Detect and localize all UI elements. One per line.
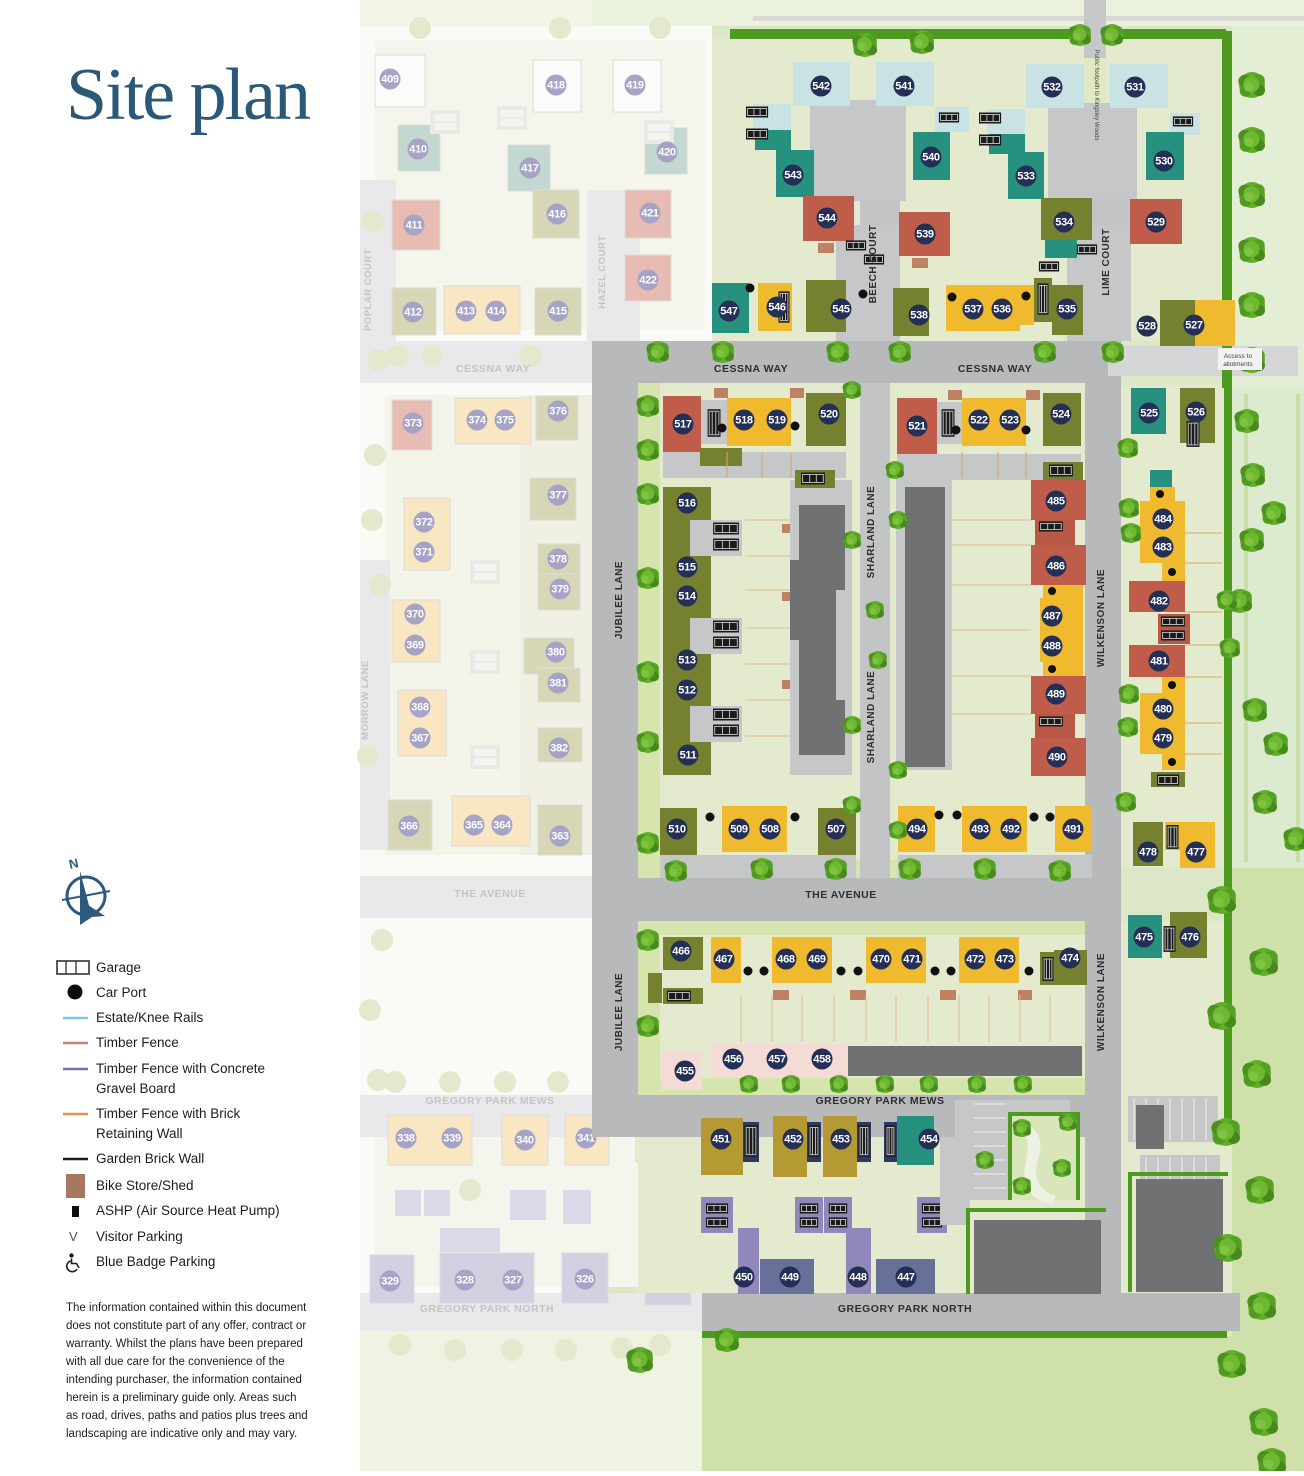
svg-text:521: 521 [908, 421, 926, 433]
svg-text:468: 468 [777, 954, 795, 966]
svg-text:487: 487 [1043, 611, 1061, 623]
svg-text:472: 472 [966, 954, 984, 966]
svg-text:513: 513 [678, 655, 696, 667]
svg-text:447: 447 [897, 1272, 915, 1284]
svg-text:490: 490 [1048, 752, 1066, 764]
svg-text:Gravel Board: Gravel Board [96, 1081, 176, 1096]
svg-text:369: 369 [406, 640, 424, 652]
svg-text:MORROW LANE: MORROW LANE [360, 660, 371, 739]
svg-text:CESSNA WAY: CESSNA WAY [456, 363, 530, 375]
svg-text:517: 517 [674, 419, 692, 431]
svg-text:363: 363 [551, 831, 569, 843]
svg-text:456: 456 [724, 1054, 742, 1066]
svg-text:367: 367 [411, 733, 429, 745]
svg-text:GREGORY PARK NORTH: GREGORY PARK NORTH [838, 1303, 972, 1315]
svg-text:532: 532 [1043, 82, 1061, 94]
svg-text:524: 524 [1052, 409, 1071, 421]
svg-text:landscaping are indicative onl: landscaping are indicative only and may … [66, 1428, 297, 1440]
svg-text:470: 470 [872, 954, 890, 966]
svg-text:GREGORY PARK MEWS: GREGORY PARK MEWS [425, 1095, 554, 1107]
svg-text:SHARLAND LANE: SHARLAND LANE [866, 671, 877, 764]
svg-text:JUBILEE LANE: JUBILEE LANE [614, 973, 625, 1051]
svg-text:413: 413 [457, 306, 475, 318]
svg-text:514: 514 [678, 591, 697, 603]
svg-text:WILKENSON LANE: WILKENSON LANE [1096, 569, 1107, 667]
svg-text:526: 526 [1187, 407, 1205, 419]
svg-text:527: 527 [1185, 320, 1203, 332]
svg-text:520: 520 [820, 409, 838, 421]
svg-text:545: 545 [832, 304, 850, 316]
svg-text:LIME COURT: LIME COURT [1101, 228, 1112, 295]
svg-text:483: 483 [1154, 542, 1172, 554]
svg-text:529: 529 [1147, 217, 1165, 229]
svg-text:516: 516 [678, 498, 696, 510]
svg-text:Garden Brick Wall: Garden Brick Wall [96, 1151, 204, 1166]
svg-text:522: 522 [970, 415, 988, 427]
svg-text:Retaining Wall: Retaining Wall [96, 1126, 183, 1141]
svg-text:541: 541 [895, 81, 913, 93]
svg-text:419: 419 [626, 80, 644, 92]
svg-text:480: 480 [1154, 704, 1172, 716]
svg-text:452: 452 [784, 1134, 802, 1146]
svg-text:377: 377 [549, 490, 567, 502]
svg-text:535: 535 [1058, 304, 1076, 316]
svg-text:530: 530 [1155, 156, 1173, 168]
svg-text:533: 533 [1017, 171, 1035, 183]
svg-text:486: 486 [1047, 561, 1065, 573]
svg-text:does not constitute part of an: does not constitute part of any offer, c… [66, 1320, 306, 1332]
svg-text:Site plan: Site plan [66, 54, 310, 136]
svg-text:421: 421 [641, 208, 659, 220]
svg-text:364: 364 [493, 820, 512, 832]
svg-text:536: 536 [993, 304, 1011, 316]
svg-text:542: 542 [812, 81, 830, 93]
svg-text:457: 457 [768, 1054, 786, 1066]
svg-text:GREGORY PARK NORTH: GREGORY PARK NORTH [420, 1303, 554, 1315]
svg-text:474: 474 [1061, 953, 1080, 965]
svg-text:381: 381 [549, 678, 567, 690]
svg-text:540: 540 [922, 152, 940, 164]
svg-text:528: 528 [1138, 321, 1156, 333]
svg-text:481: 481 [1150, 656, 1168, 668]
svg-text:512: 512 [678, 685, 696, 697]
svg-text:376: 376 [549, 406, 567, 418]
svg-text:409: 409 [381, 74, 399, 86]
svg-text:546: 546 [768, 302, 786, 314]
svg-text:WILKENSON LANE: WILKENSON LANE [1096, 953, 1107, 1051]
svg-text:477: 477 [1187, 847, 1205, 859]
svg-text:380: 380 [547, 647, 565, 659]
svg-text:CESSNA WAY: CESSNA WAY [714, 363, 788, 375]
svg-text:with all due care for the conv: with all due care for the convenience of… [65, 1356, 285, 1368]
svg-text:338: 338 [397, 1133, 415, 1145]
svg-text:534: 534 [1055, 217, 1074, 229]
svg-text:482: 482 [1150, 596, 1168, 608]
svg-text:382: 382 [550, 743, 568, 755]
svg-text:327: 327 [504, 1275, 522, 1287]
svg-text:Timber Fence: Timber Fence [96, 1035, 179, 1050]
svg-text:340: 340 [516, 1135, 534, 1147]
svg-text:458: 458 [813, 1054, 831, 1066]
svg-text:Timber Fence with Concrete: Timber Fence with Concrete [96, 1061, 265, 1076]
svg-text:491: 491 [1064, 824, 1082, 836]
svg-text:510: 510 [668, 824, 686, 836]
svg-text:467: 467 [715, 954, 733, 966]
svg-text:484: 484 [1154, 514, 1173, 526]
svg-text:374: 374 [468, 415, 487, 427]
svg-text:365: 365 [465, 820, 483, 832]
svg-text:368: 368 [411, 702, 429, 714]
svg-text:Access to: Access to [1224, 353, 1253, 360]
svg-text:CESSNA WAY: CESSNA WAY [958, 363, 1032, 375]
svg-text:471: 471 [903, 954, 921, 966]
svg-text:531: 531 [1126, 82, 1144, 94]
svg-text:416: 416 [548, 209, 566, 221]
svg-text:intending purchaser, the infor: intending purchaser, the information con… [66, 1374, 302, 1386]
svg-text:493: 493 [971, 824, 989, 836]
svg-text:478: 478 [1139, 847, 1157, 859]
svg-text:511: 511 [680, 750, 697, 762]
svg-text:Timber Fence with Brick: Timber Fence with Brick [96, 1106, 241, 1121]
svg-text:warranty. Whilst the plans hav: warranty. Whilst the plans have been pre… [65, 1338, 303, 1350]
svg-text:525: 525 [1140, 408, 1158, 420]
svg-text:417: 417 [521, 163, 539, 175]
svg-text:492: 492 [1002, 824, 1020, 836]
svg-text:V: V [69, 1229, 78, 1244]
svg-text:410: 410 [409, 144, 427, 156]
svg-text:507: 507 [827, 824, 845, 836]
svg-text:HAZEL COURT: HAZEL COURT [597, 235, 608, 308]
svg-text:378: 378 [549, 554, 567, 566]
svg-text:SHARLAND LANE: SHARLAND LANE [866, 486, 877, 579]
svg-text:POPLAR COURT: POPLAR COURT [363, 249, 374, 331]
svg-text:373: 373 [404, 418, 422, 430]
svg-text:479: 479 [1154, 733, 1172, 745]
svg-text:451: 451 [712, 1134, 730, 1146]
svg-text:544: 544 [818, 213, 837, 225]
svg-text:Bike Store/Shed: Bike Store/Shed [96, 1178, 194, 1193]
svg-text:519: 519 [768, 415, 786, 427]
svg-text:475: 475 [1135, 932, 1153, 944]
svg-text:411: 411 [406, 220, 423, 232]
svg-text:454: 454 [920, 1134, 939, 1146]
svg-text:The information contained with: The information contained within this do… [66, 1302, 307, 1314]
svg-text:422: 422 [639, 275, 657, 287]
svg-text:THE AVENUE: THE AVENUE [454, 888, 526, 900]
svg-text:allotments: allotments [1223, 361, 1253, 368]
svg-text:375: 375 [496, 415, 514, 427]
svg-text:455: 455 [676, 1066, 694, 1078]
svg-text:371: 371 [415, 547, 433, 559]
svg-text:453: 453 [832, 1134, 850, 1146]
svg-text:420: 420 [658, 147, 676, 159]
svg-text:366: 366 [400, 821, 418, 833]
svg-text:ASHP (Air Source Heat Pump): ASHP (Air Source Heat Pump) [96, 1203, 280, 1218]
svg-text:372: 372 [415, 517, 433, 529]
svg-text:494: 494 [908, 824, 927, 836]
svg-text:329: 329 [381, 1276, 399, 1288]
svg-text:537: 537 [964, 304, 982, 316]
svg-text:Public footpath to Kingsley Wo: Public footpath to Kingsley Woods [1093, 50, 1099, 141]
svg-text:BEECH COURT: BEECH COURT [868, 225, 879, 304]
svg-text:Estate/Knee Rails: Estate/Knee Rails [96, 1010, 204, 1025]
svg-text:488: 488 [1043, 641, 1061, 653]
svg-text:328: 328 [456, 1275, 474, 1287]
svg-text:448: 448 [849, 1272, 867, 1284]
svg-text:JUBILEE LANE: JUBILEE LANE [614, 561, 625, 639]
svg-text:339: 339 [443, 1133, 461, 1145]
svg-text:518: 518 [735, 415, 753, 427]
svg-text:414: 414 [487, 306, 506, 318]
svg-text:485: 485 [1047, 496, 1065, 508]
svg-text:449: 449 [781, 1272, 799, 1284]
svg-text:Car Port: Car Port [96, 985, 147, 1000]
svg-text:450: 450 [735, 1272, 753, 1284]
svg-text:GREGORY PARK MEWS: GREGORY PARK MEWS [815, 1095, 944, 1107]
svg-text:476: 476 [1181, 932, 1199, 944]
svg-text:326: 326 [576, 1274, 594, 1286]
svg-text:418: 418 [547, 80, 565, 92]
svg-text:489: 489 [1047, 689, 1065, 701]
svg-text:379: 379 [551, 584, 569, 596]
svg-text:547: 547 [720, 306, 738, 318]
svg-text:412: 412 [404, 307, 422, 319]
svg-text:Visitor Parking: Visitor Parking [96, 1229, 183, 1244]
svg-text:509: 509 [730, 824, 748, 836]
svg-text:370: 370 [406, 609, 424, 621]
svg-text:538: 538 [910, 310, 928, 322]
svg-text:543: 543 [784, 170, 802, 182]
svg-text:415: 415 [549, 306, 567, 318]
svg-text:523: 523 [1001, 415, 1019, 427]
svg-text:515: 515 [678, 562, 696, 574]
svg-text:Garage: Garage [96, 960, 141, 975]
svg-text:508: 508 [761, 824, 779, 836]
svg-text:469: 469 [808, 954, 826, 966]
svg-text:herein is a preliminary guide: herein is a preliminary guide only. Area… [66, 1392, 297, 1404]
svg-text:as road, drives, paths and pat: as road, drives, paths and patios plus t… [66, 1410, 308, 1422]
svg-text:Blue Badge Parking: Blue Badge Parking [96, 1254, 215, 1269]
svg-text:466: 466 [672, 946, 690, 958]
svg-text:THE AVENUE: THE AVENUE [805, 889, 877, 901]
svg-text:473: 473 [996, 954, 1014, 966]
svg-text:539: 539 [916, 229, 934, 241]
